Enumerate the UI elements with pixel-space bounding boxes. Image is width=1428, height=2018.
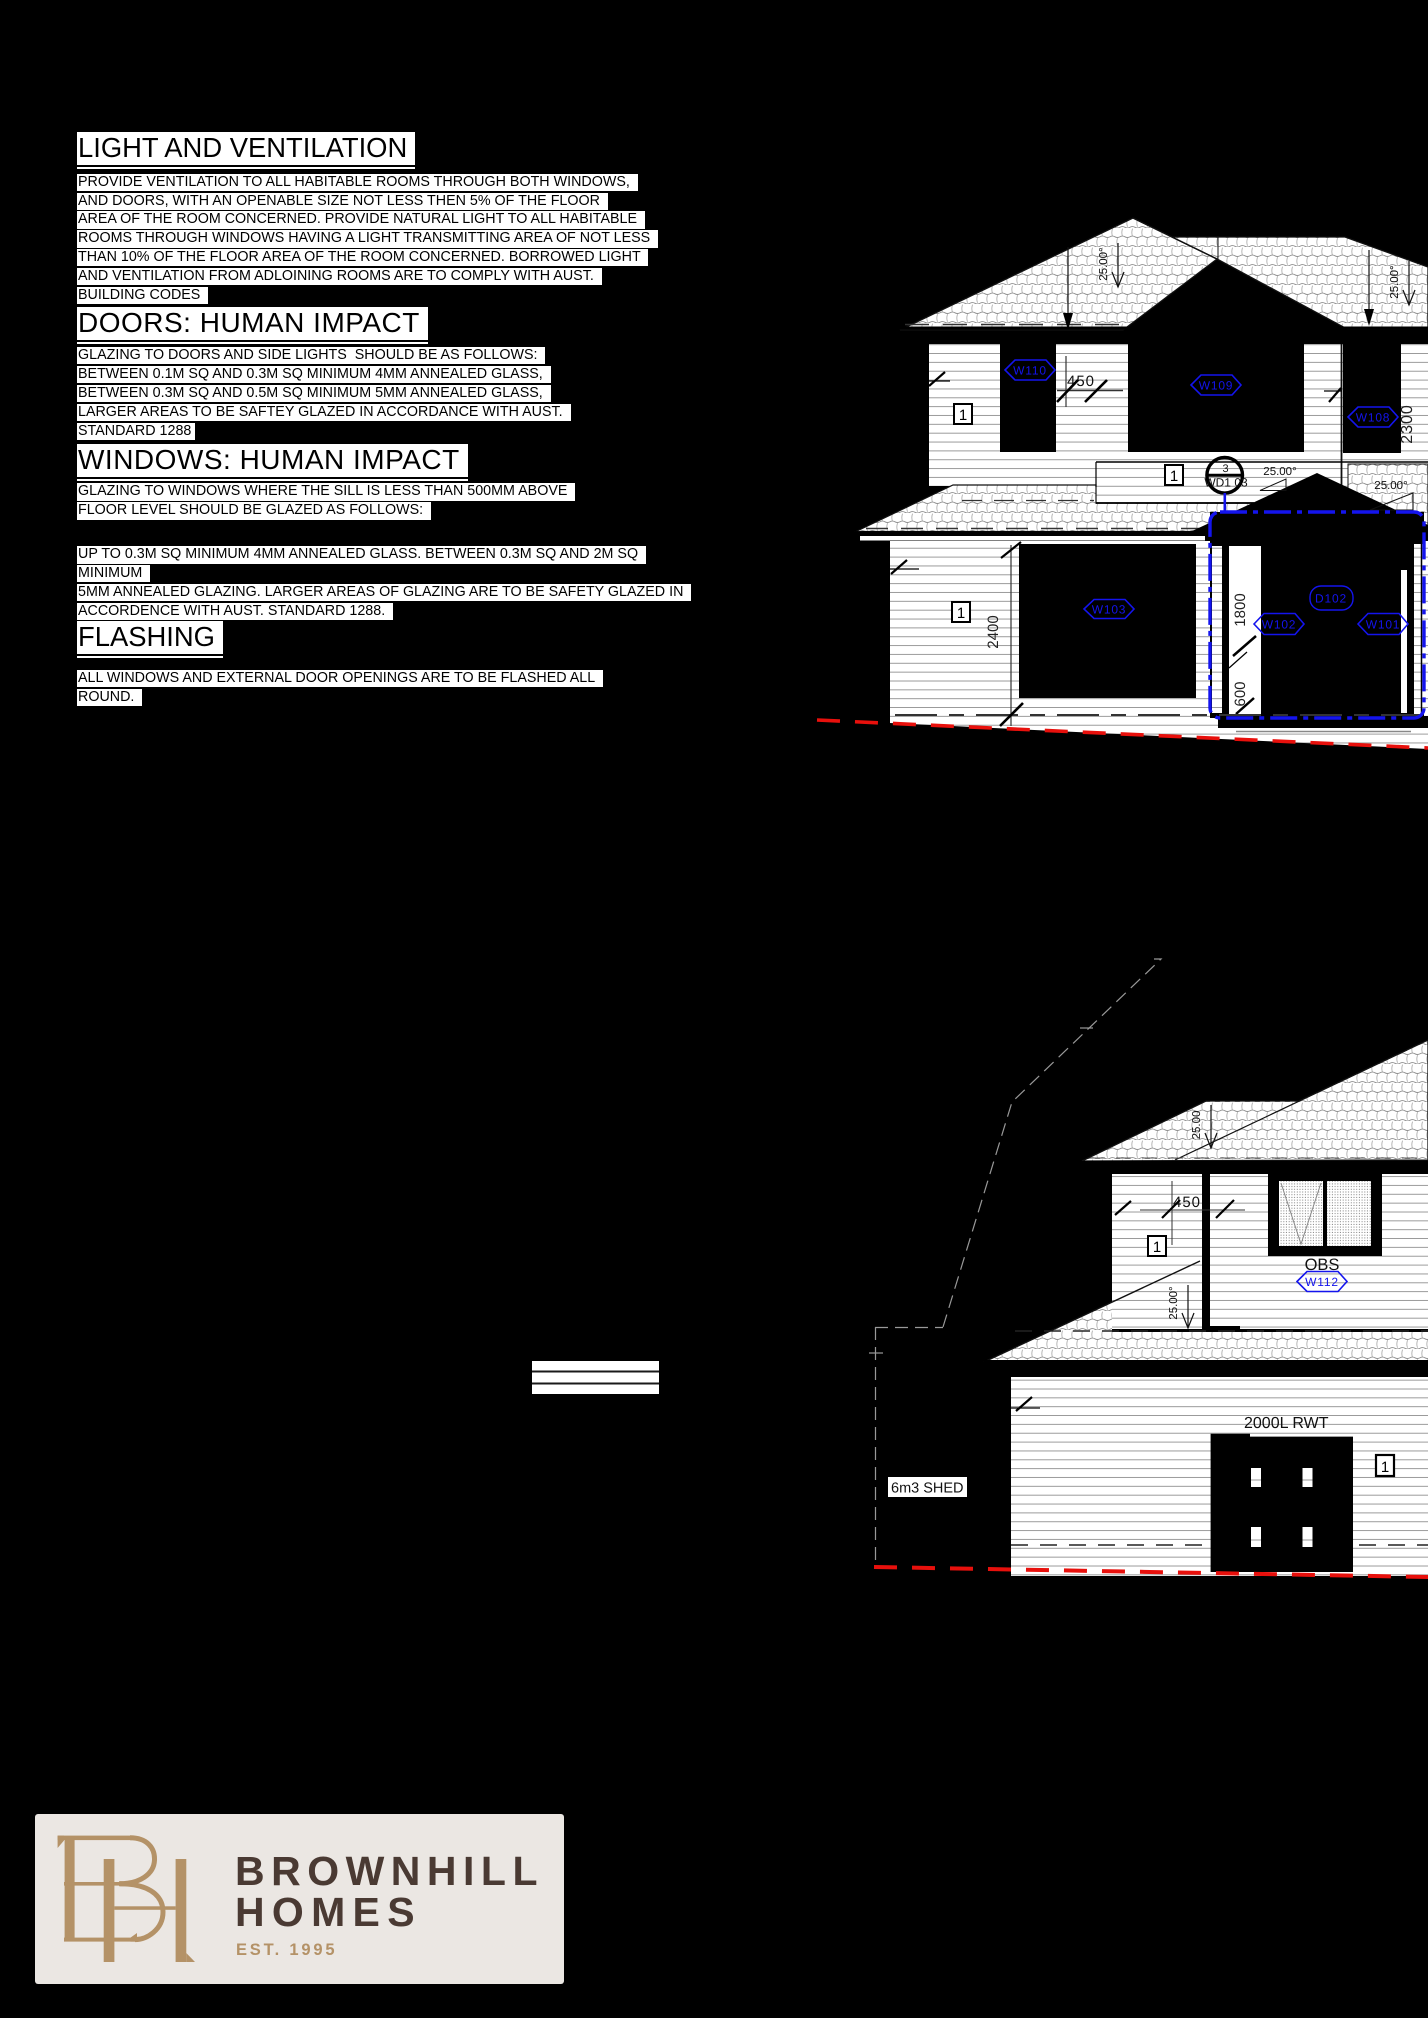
svg-text:1: 1 [957, 605, 965, 622]
svg-text:2000L RWT: 2000L RWT [1244, 1415, 1329, 1432]
svg-text:W110: W110 [1013, 364, 1047, 378]
svg-text:1800: 1800 [1232, 593, 1249, 626]
svg-text:W108: W108 [1356, 411, 1391, 425]
svg-text:25.00: 25.00 [1191, 1111, 1203, 1140]
svg-text:1: 1 [959, 407, 967, 424]
svg-text:25.00°: 25.00° [1374, 480, 1407, 492]
svg-text:1: 1 [1381, 1459, 1389, 1476]
svg-text:1: 1 [1170, 468, 1178, 485]
svg-text:W102: W102 [1262, 618, 1297, 632]
svg-text:W103: W103 [1092, 603, 1127, 617]
svg-text:600: 600 [1232, 681, 1249, 706]
svg-text:2300: 2300 [1399, 404, 1416, 444]
svg-text:25.00°: 25.00° [1389, 265, 1401, 298]
svg-text:D102: D102 [1315, 592, 1347, 606]
svg-text:3: 3 [1222, 463, 1228, 475]
svg-text:WD1 03: WD1 03 [1204, 476, 1248, 490]
svg-text:1: 1 [1153, 1239, 1161, 1256]
svg-text:W109: W109 [1199, 379, 1234, 393]
svg-text:2400: 2400 [985, 615, 1002, 648]
svg-text:25.00°: 25.00° [1168, 1286, 1180, 1319]
svg-text:W101: W101 [1366, 618, 1401, 632]
svg-text:25.00°: 25.00° [1263, 466, 1296, 478]
svg-text:25.00°: 25.00° [1098, 247, 1110, 280]
svg-text:W112: W112 [1305, 1275, 1339, 1289]
svg-text:6m3 SHED: 6m3 SHED [891, 1481, 964, 1497]
